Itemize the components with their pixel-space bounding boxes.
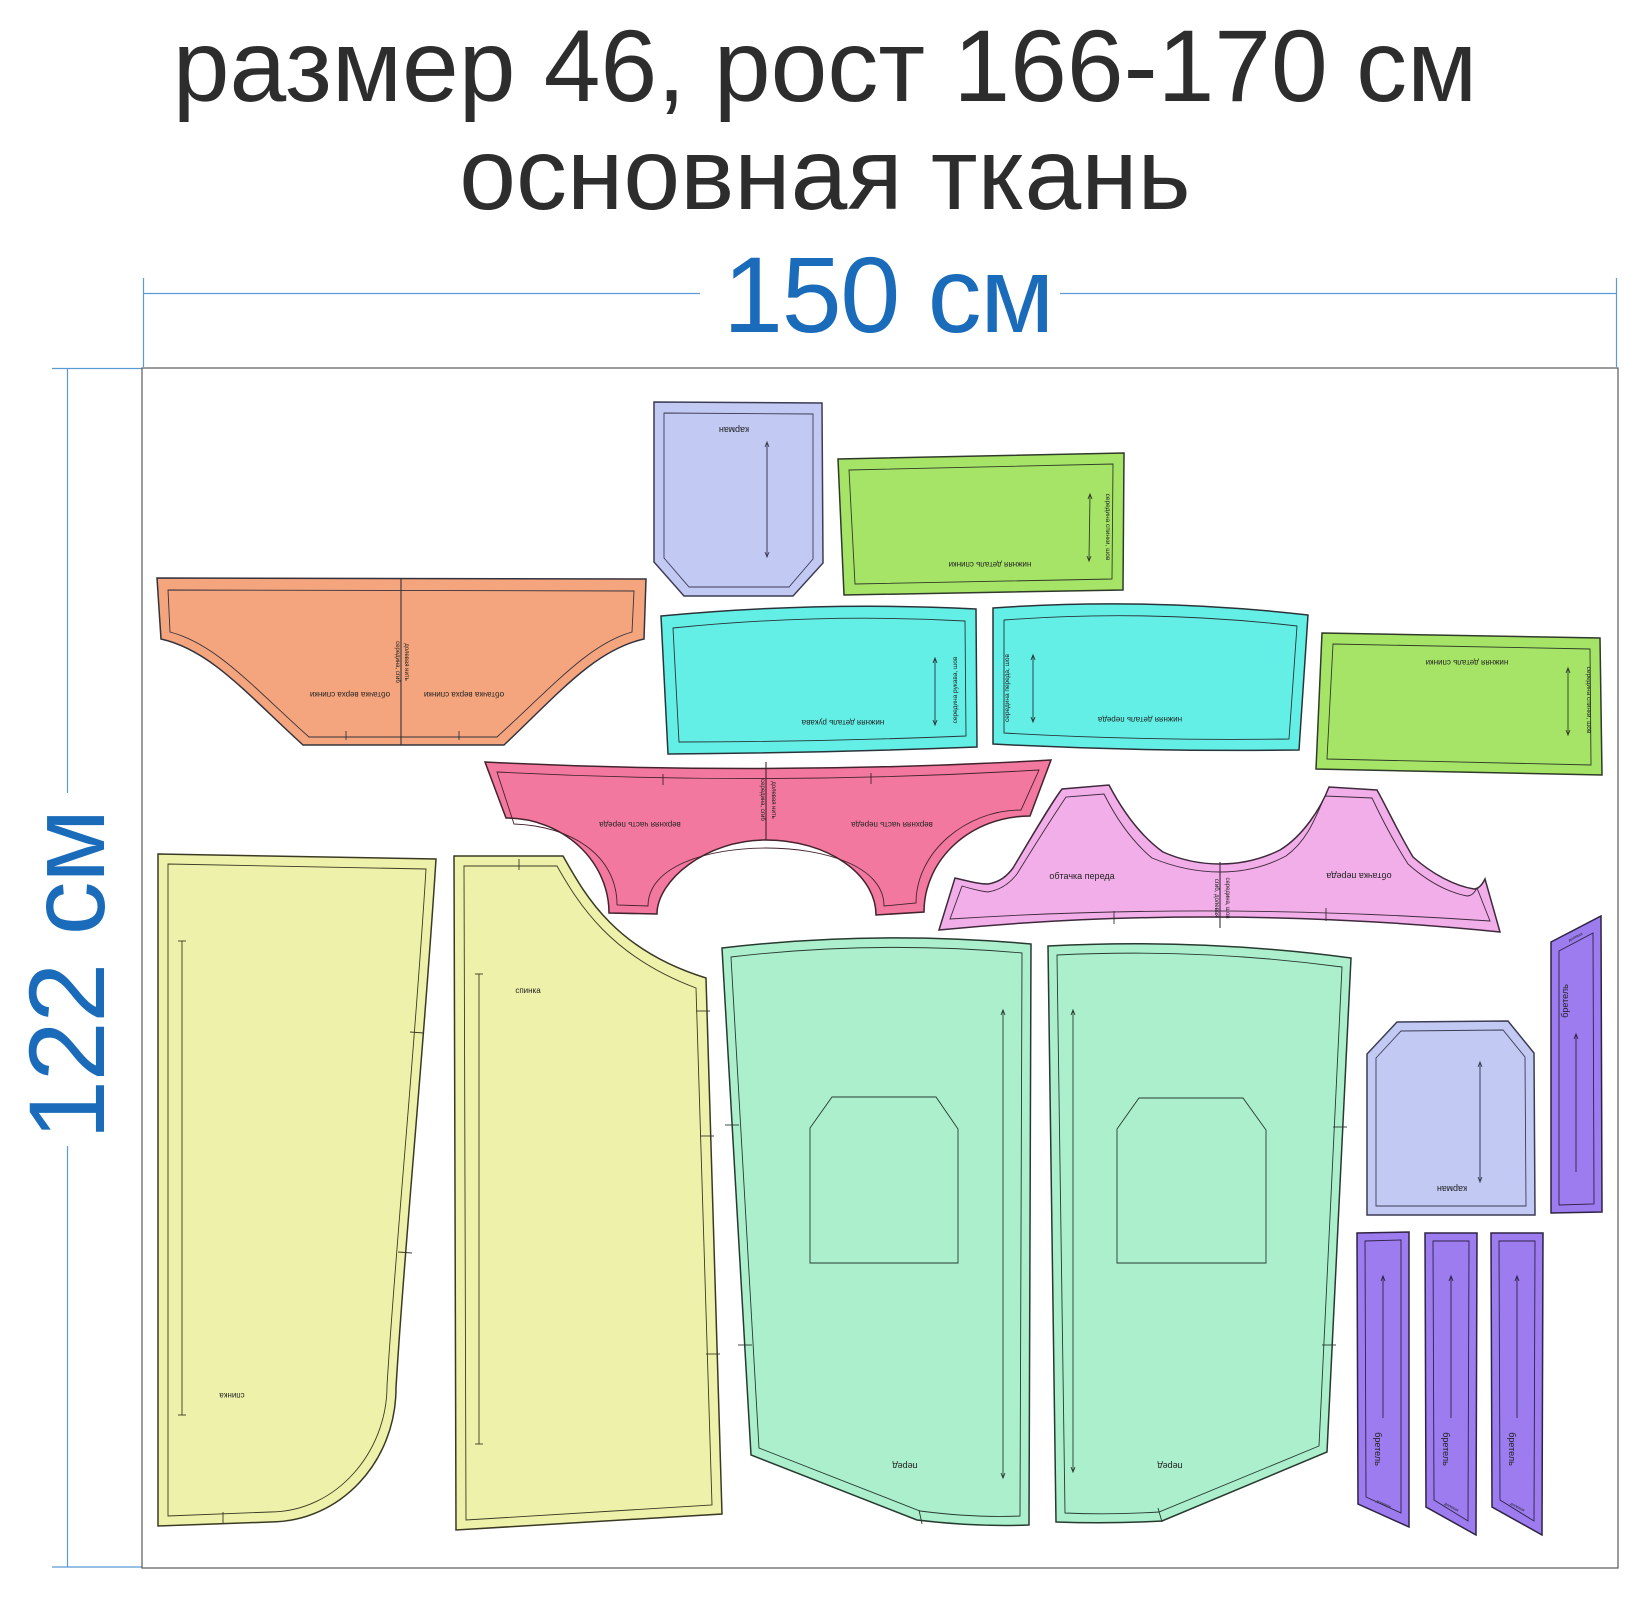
svg-text:верхняя часть переда: верхняя часть переда [851,820,933,829]
svg-text:карман: карман [1437,1184,1467,1194]
svg-text:122 см: 122 см [6,810,127,1140]
svg-text:обтачка верха спинки: обтачка верха спинки [310,690,390,699]
svg-text:долевая нить: долевая нить [770,781,776,818]
svg-text:спинка: спинка [219,1391,245,1400]
svg-text:обтачка переда: обтачка переда [1326,871,1391,881]
svg-text:основная ткань: основная ткань [459,117,1190,231]
svg-text:середина рукава, шов: середина рукава, шов [952,656,959,723]
svg-text:бретель: бретель [1373,1432,1383,1466]
svg-text:нижняя деталь спинки: нижняя деталь спинки [949,560,1032,569]
svg-text:середина спинки, шов: середина спинки, шов [1585,667,1592,734]
svg-text:середина спинки, шов: середина спинки, шов [1104,494,1111,561]
svg-text:середина, сгиб: середина, сгиб [759,779,765,821]
svg-text:обтачка верха спинки: обтачка верха спинки [424,690,504,699]
svg-text:долевая нить: долевая нить [403,643,409,680]
svg-text:бретель: бретель [1441,1432,1451,1466]
svg-text:размер 46, рост 166-170 см: размер 46, рост 166-170 см [173,9,1477,123]
svg-text:середина, сгиб: середина, сгиб [394,641,400,683]
svg-text:середина переда, шов: середина переда, шов [1004,654,1011,722]
svg-text:сгиб, долевая: сгиб, долевая [1213,879,1219,918]
svg-text:нижняя деталь спинки: нижняя деталь спинки [1426,658,1509,667]
svg-text:перед: перед [892,1461,918,1471]
svg-text:середина, шов: середина, шов [1224,877,1230,918]
svg-text:нижняя деталь рукава: нижняя деталь рукава [801,718,884,727]
svg-text:нижняя деталь переда: нижняя деталь переда [1097,715,1182,724]
svg-text:карман: карман [719,425,749,435]
svg-text:верхняя часть переда: верхняя часть переда [599,820,681,829]
svg-text:бретель: бретель [1507,1432,1517,1466]
svg-text:спинка: спинка [515,986,541,995]
svg-text:бретель: бретель [1560,984,1570,1018]
svg-text:перед: перед [1157,1461,1183,1471]
svg-text:150 см: 150 см [723,234,1053,355]
svg-text:обтачка переда: обтачка переда [1049,871,1114,881]
